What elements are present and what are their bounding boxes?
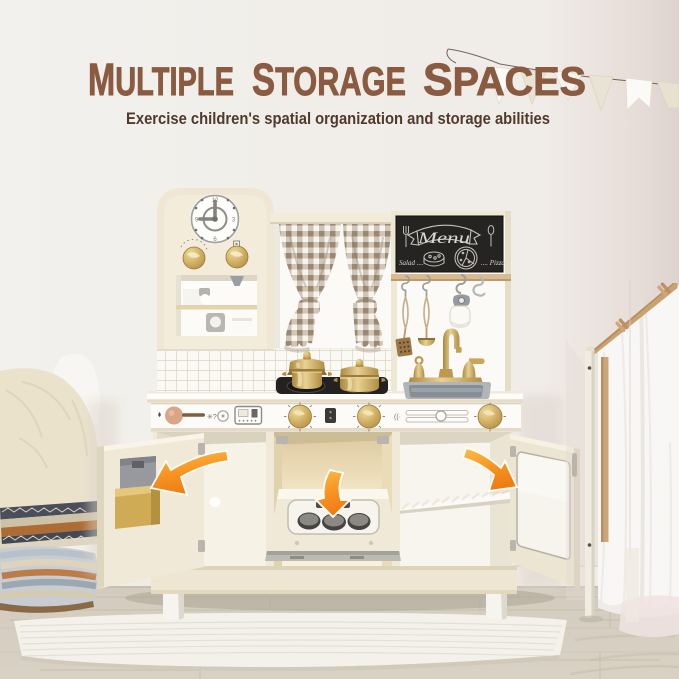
svg-text:Menu: Menu	[417, 230, 471, 247]
svg-text:Salad ....: Salad ....	[399, 259, 424, 267]
svg-text:.... Pizza: .... Pizza	[481, 259, 505, 267]
svg-text:SPACES: SPACES	[423, 54, 586, 105]
svg-text:Exercise children's spatial or: Exercise children's spatial organization…	[126, 109, 550, 128]
svg-text:STORAGE: STORAGE	[252, 54, 406, 105]
svg-text:((·: ((·	[394, 414, 401, 421]
svg-text:✳?: ✳?	[207, 413, 217, 421]
svg-text:MULTIPLE: MULTIPLE	[88, 54, 234, 105]
